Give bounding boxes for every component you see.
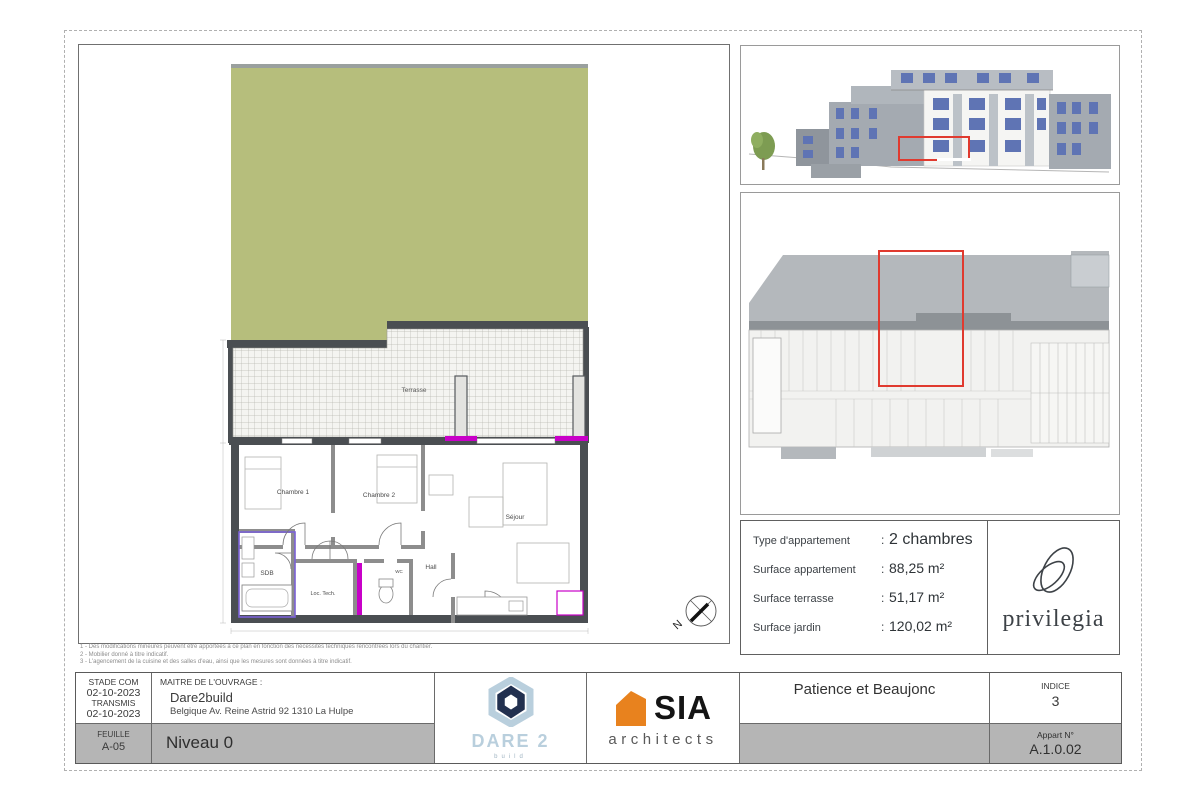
feuille-cell: FEUILLE A-05 bbox=[76, 723, 151, 763]
sia-logo-top: SIA bbox=[614, 689, 712, 727]
tree bbox=[751, 132, 775, 170]
maitre-cell: MAITRE DE L'OUVRAGE : Dare2build Belgiqu… bbox=[151, 673, 434, 723]
note-line-1: 1 - Des modifications mineures peuvent ê… bbox=[80, 644, 700, 652]
terrace-pillar bbox=[455, 376, 467, 437]
privilegia-wordmark: privilegia bbox=[1003, 606, 1105, 633]
info-colon: : bbox=[881, 591, 889, 605]
apartment-info-table: Type d'appartement : 2 chambres Surface … bbox=[741, 521, 988, 654]
indice-value: 3 bbox=[990, 694, 1121, 709]
empty-gray-cell bbox=[739, 723, 989, 763]
info-label: Surface jardin bbox=[753, 622, 881, 634]
info-value: 120,02 m² bbox=[889, 618, 952, 634]
dare2build-hexagon-icon bbox=[484, 677, 538, 727]
sia-house-icon bbox=[614, 689, 648, 727]
stade-label: STADE COM bbox=[76, 677, 151, 688]
chambre1-label: Chambre 1 bbox=[277, 489, 310, 496]
wc-label: WC bbox=[395, 569, 403, 574]
maitre-name: Dare2build bbox=[170, 690, 434, 705]
terrasse-label: Terrasse bbox=[402, 387, 427, 394]
elevation-white-gap bbox=[937, 158, 971, 161]
feuille-label: FEUILLE bbox=[76, 729, 151, 741]
privilegia-logo: privilegia bbox=[988, 521, 1119, 654]
terrace-pillar bbox=[573, 376, 585, 437]
drawing-sheet: Terrasse bbox=[0, 0, 1200, 800]
niveau-value: Niveau 0 bbox=[166, 733, 233, 752]
project-name-cell: Patience et Beaujonc bbox=[739, 673, 989, 723]
dare2build-logo: DARE 2 build bbox=[434, 673, 586, 763]
garden-area bbox=[231, 68, 588, 340]
maitre-label: MAITRE DE L'OUVRAGE : bbox=[160, 677, 434, 687]
info-row-surface-jardin: Surface jardin : 120,02 m² bbox=[753, 618, 987, 647]
sejour-label: Séjour bbox=[506, 514, 526, 521]
keyplan-entries bbox=[781, 447, 1033, 459]
niveau-cell: Niveau 0 bbox=[151, 723, 434, 763]
transmis-label: TRANSMIS bbox=[76, 698, 151, 709]
info-row-surface-appartement: Surface appartement : 88,25 m² bbox=[753, 560, 987, 589]
appart-label: Appart N° bbox=[990, 728, 1121, 742]
info-row-surface-terrasse: Surface terrasse : 51,17 m² bbox=[753, 589, 987, 618]
info-value: 51,17 m² bbox=[889, 589, 944, 605]
stade-date: 02-10-2023 bbox=[76, 688, 151, 699]
info-value: 88,25 m² bbox=[889, 560, 944, 576]
key-plan-drawing bbox=[741, 193, 1119, 514]
indice-cell: INDICE 3 bbox=[989, 673, 1121, 723]
keyplan-panel bbox=[740, 192, 1120, 515]
hall-label: Hall bbox=[425, 564, 437, 571]
project-name: Patience et Beaujonc bbox=[794, 681, 936, 698]
info-colon: : bbox=[881, 562, 889, 576]
maitre-address: Belgique Av. Reine Astrid 92 1310 La Hul… bbox=[170, 706, 434, 717]
building-elevation-drawing bbox=[741, 46, 1119, 184]
north-label: N bbox=[671, 618, 685, 632]
info-colon: : bbox=[881, 620, 889, 634]
north-arrow: N bbox=[671, 596, 716, 632]
privilegia-loop-icon bbox=[1019, 542, 1089, 604]
stade-cell: STADE COM 02-10-2023 TRANSMIS 02-10-2023 bbox=[76, 673, 151, 723]
floor-plan-panel: Terrasse bbox=[78, 44, 730, 644]
chambre2-label: Chambre 2 bbox=[363, 492, 396, 499]
keyplan-garden bbox=[749, 251, 1109, 321]
info-label: Surface terrasse bbox=[753, 593, 881, 605]
note-line-2: 2 - Mobilier donné à titre indicatif. bbox=[80, 652, 700, 660]
indice-label: INDICE bbox=[990, 679, 1121, 694]
appart-value: A.1.0.02 bbox=[990, 742, 1121, 756]
info-colon: : bbox=[881, 533, 889, 547]
plan-notes: 1 - Des modifications mineures peuvent ê… bbox=[80, 644, 700, 667]
title-block: STADE COM 02-10-2023 TRANSMIS 02-10-2023… bbox=[75, 672, 1122, 764]
note-line-3: 3 - L'agencement de la cuisine et des sa… bbox=[80, 659, 700, 667]
info-row-type: Type d'appartement : 2 chambres bbox=[753, 531, 987, 560]
sdb-label: SDB bbox=[260, 570, 273, 577]
sia-architects-logo: SIA architects bbox=[586, 673, 739, 763]
apartment-north-wall bbox=[229, 436, 588, 445]
keyplan-parking-lines bbox=[1031, 343, 1109, 443]
info-value: 2 chambres bbox=[889, 531, 973, 549]
dare2-wordmark: DARE 2 bbox=[471, 731, 549, 752]
info-label: Type d'appartement bbox=[753, 535, 881, 547]
elevation-panel bbox=[740, 45, 1120, 185]
apartment-info-panel: Type d'appartement : 2 chambres Surface … bbox=[740, 520, 1120, 655]
feuille-value: A-05 bbox=[76, 741, 151, 753]
sia-wordmark: SIA bbox=[654, 689, 712, 727]
info-label: Surface appartement bbox=[753, 564, 881, 576]
magenta-door bbox=[357, 563, 362, 615]
transmis-date: 02-10-2023 bbox=[76, 709, 151, 720]
sia-sub-wordmark: architects bbox=[608, 731, 717, 748]
dare2-sub-wordmark: build bbox=[494, 754, 527, 760]
floor-plan-drawing: Terrasse bbox=[79, 45, 727, 641]
loc-tech-label: Loc. Tech. bbox=[311, 591, 336, 597]
appart-cell: Appart N° A.1.0.02 bbox=[989, 723, 1121, 763]
